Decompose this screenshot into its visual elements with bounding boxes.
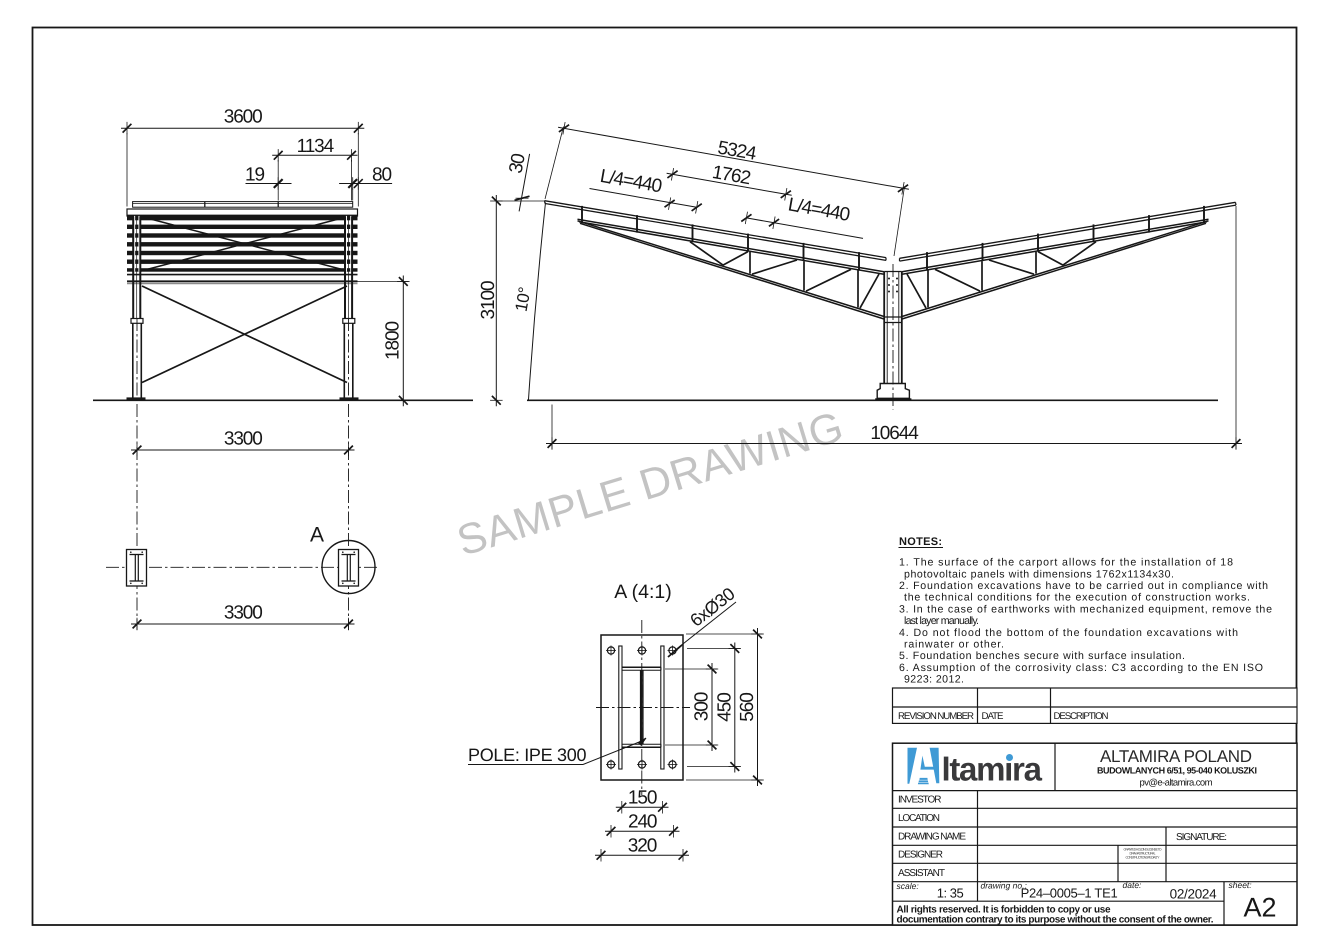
svg-text:3300: 3300	[224, 429, 262, 450]
svg-text:P24–0005–1 TE1: P24–0005–1 TE1	[1021, 886, 1118, 901]
svg-text:1800: 1800	[383, 322, 404, 360]
svg-text:80: 80	[372, 165, 391, 186]
svg-text:A (4:1): A (4:1)	[614, 581, 671, 603]
svg-text:A: A	[310, 524, 324, 547]
svg-text:BUDOWLANYCH 6/51, 95-040 KOLU: BUDOWLANYCH 6/51, 95-040 KOLUSZKI	[1097, 766, 1257, 776]
svg-text:1: 35: 1: 35	[937, 886, 964, 901]
svg-text:6. Assumption of the corrosiv: 6. Assumption of the corrosivity class: …	[899, 662, 1263, 674]
svg-text:320: 320	[628, 836, 657, 857]
svg-text:300: 300	[692, 692, 713, 721]
svg-text:560: 560	[737, 693, 758, 722]
svg-text:1. The surface of the carport: 1. The surface of the carport allows for…	[899, 557, 1233, 569]
svg-text:3100: 3100	[478, 281, 499, 319]
svg-text:photovoltaic panels with dimen: photovoltaic panels with dimensions 1762…	[904, 568, 1174, 580]
svg-text:150: 150	[628, 788, 657, 809]
svg-text:CONSTRUCTION SPECIALTY: CONSTRUCTION SPECIALTY	[1126, 856, 1161, 860]
svg-text:INVESTOR: INVESTOR	[898, 795, 942, 806]
svg-text:10644: 10644	[870, 423, 919, 444]
svg-text:240: 240	[628, 812, 657, 833]
svg-text:A2: A2	[1243, 893, 1276, 923]
svg-text:3300: 3300	[224, 603, 262, 624]
svg-text:4. Do not flood the bottom of: 4. Do not flood the bottom of the founda…	[899, 627, 1238, 639]
svg-text:date:: date:	[1123, 880, 1143, 890]
svg-text:ASSISTANT: ASSISTANT	[898, 868, 945, 879]
svg-text:SIGNATURE:: SIGNATURE:	[1176, 832, 1227, 843]
svg-text:LOCATION: LOCATION	[898, 813, 940, 824]
svg-text:DRAWING NAME: DRAWING NAME	[898, 832, 966, 843]
svg-text:DATE: DATE	[982, 711, 1005, 722]
svg-text:02/2024: 02/2024	[1170, 887, 1217, 902]
svg-text:2. Foundation excavations hav: 2. Foundation excavations have to be car…	[899, 580, 1268, 592]
svg-text:3600: 3600	[224, 107, 262, 128]
svg-text:documentation contrary to its: documentation contrary to its purpose wi…	[897, 914, 1214, 925]
svg-text:ALTAMIRA POLAND: ALTAMIRA POLAND	[1100, 747, 1252, 766]
svg-text:NOTES:: NOTES:	[899, 536, 942, 548]
svg-text:DESCRIPTION: DESCRIPTION	[1054, 711, 1109, 722]
svg-text:the technical conditions for t: the technical conditions for the executi…	[904, 592, 1250, 604]
svg-text:3. In the case of earthworks: 3. In the case of earthworks with mechan…	[899, 603, 1272, 615]
svg-text:pv@e-altamira.com: pv@e-altamira.com	[1140, 778, 1213, 789]
svg-text:rainwater or other.: rainwater or other.	[904, 639, 1004, 651]
svg-text:19: 19	[245, 165, 264, 186]
svg-text:9223: 2012.: 9223: 2012.	[904, 674, 964, 686]
svg-text:REVISION NUMBER: REVISION NUMBER	[898, 711, 974, 722]
svg-text:sheet:: sheet:	[1229, 880, 1253, 890]
svg-text:1134: 1134	[297, 136, 335, 157]
svg-text:POLE: IPE 300: POLE: IPE 300	[468, 745, 586, 765]
svg-text:last layer manually.: last layer manually.	[904, 615, 979, 627]
svg-text:DESIGNER: DESIGNER	[898, 850, 943, 861]
svg-text:ltamıra: ltamıra	[942, 751, 1043, 788]
svg-text:scale:: scale:	[897, 881, 920, 891]
svg-text:450: 450	[714, 693, 735, 722]
svg-text:5. Foundation benches secure: 5. Foundation benches secure with surfac…	[899, 650, 1185, 662]
